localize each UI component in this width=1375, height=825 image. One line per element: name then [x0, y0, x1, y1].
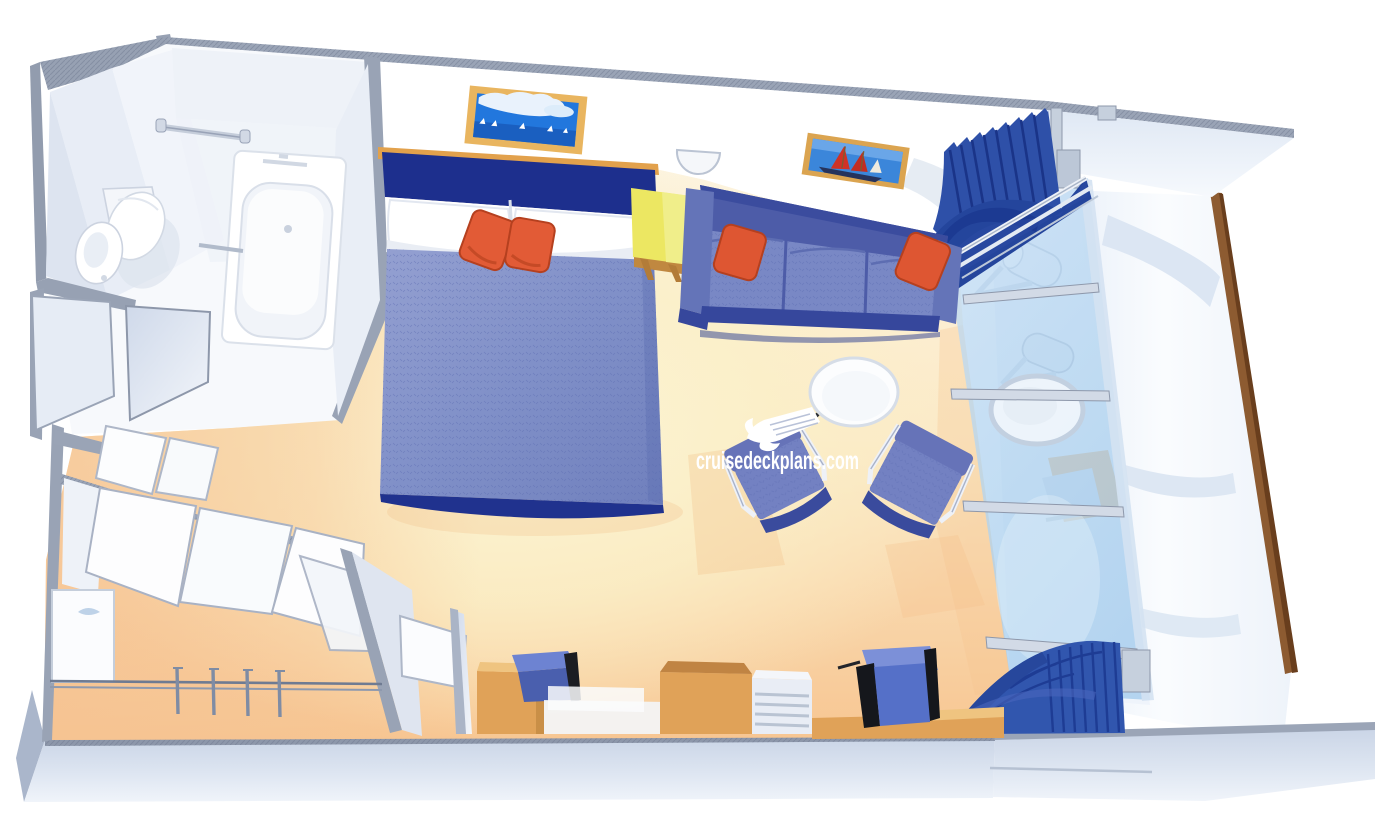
svg-text:cruisedeckplans.com: cruisedeckplans.com — [696, 447, 859, 475]
